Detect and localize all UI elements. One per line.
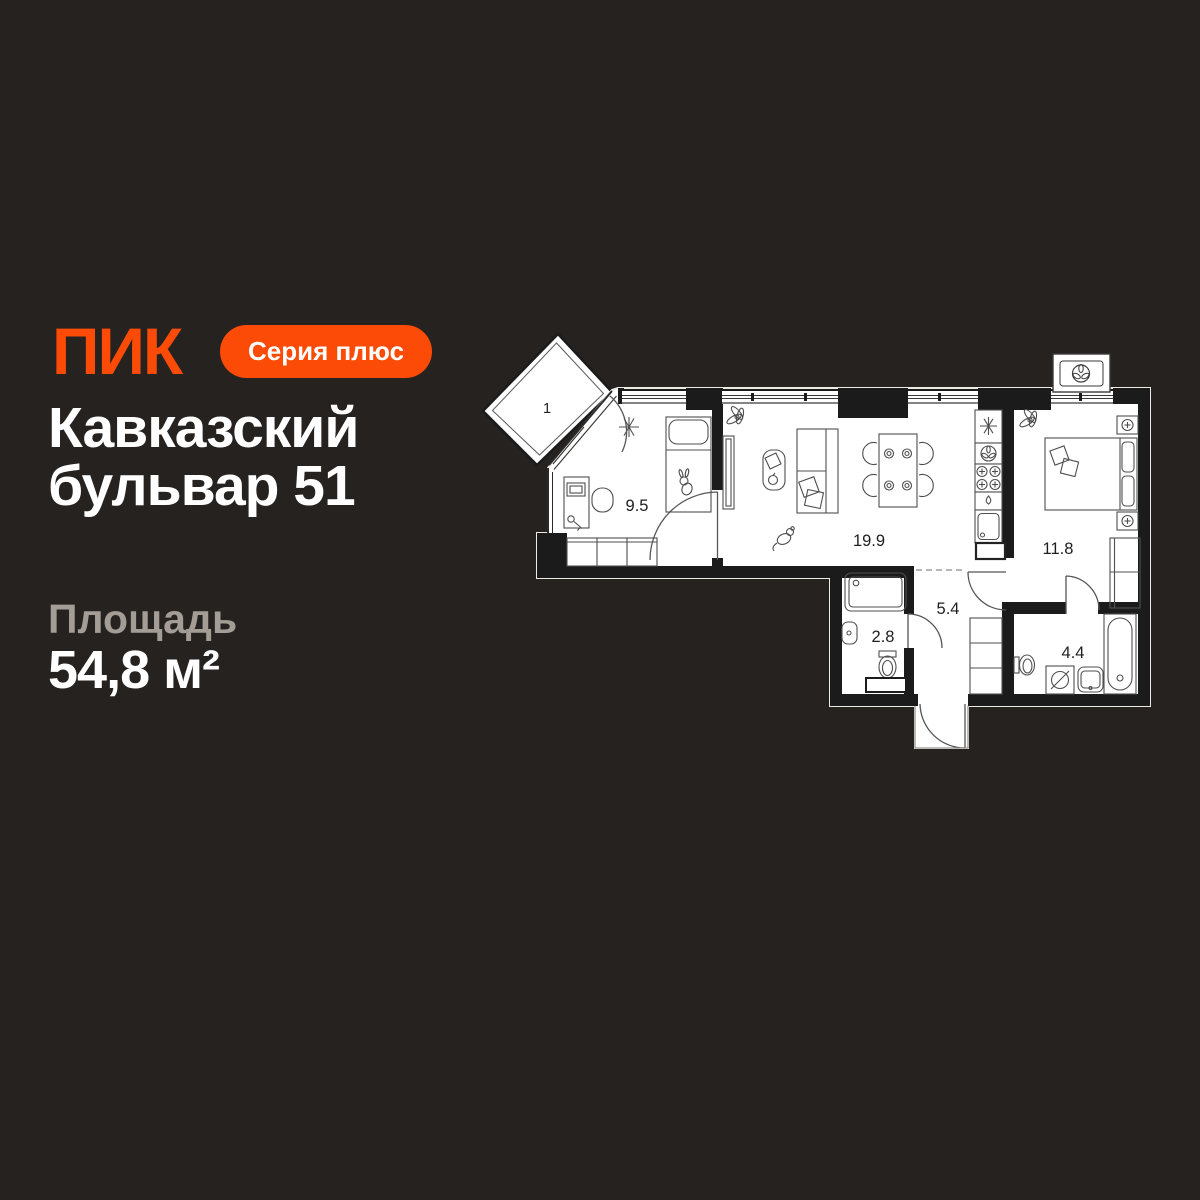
window-living-1: [722, 389, 838, 404]
room-label: 2.8: [872, 628, 895, 646]
room-label: 9.5: [626, 497, 649, 515]
fridge-unit: [975, 410, 1002, 443]
room-label: 11.8: [1043, 540, 1074, 558]
cooktop-unit: [975, 464, 1002, 492]
pik-logo: ПИК: [52, 318, 181, 384]
sink-unit: [975, 510, 1002, 543]
balcony-label: 1: [543, 401, 551, 417]
listing-card: ПИК Серия плюс Кавказскийбульвар 51 Площ…: [0, 0, 1200, 1200]
page-title: Кавказскийбульвар 51: [48, 399, 358, 515]
room-label: 4.4: [1062, 644, 1085, 662]
room-label: 5.4: [937, 600, 960, 618]
title-line1: Кавказский: [48, 396, 358, 460]
oven-unit: [976, 543, 1005, 559]
area-label: Площадь: [48, 597, 237, 642]
title-line2: бульвар 51: [48, 454, 355, 518]
worktop-unit: [975, 492, 1002, 510]
series-badge: Серия плюс: [220, 325, 432, 378]
room-label: 19.9: [853, 532, 885, 550]
window-child-bedroom: [622, 389, 686, 404]
floor-plan: 1: [470, 325, 1170, 755]
hood-unit: [975, 443, 1002, 464]
window-living-2: [908, 389, 978, 404]
kitchen-column: [975, 410, 1005, 559]
area-value: 54,8 м²: [48, 641, 219, 700]
ac-basket: [1053, 354, 1110, 392]
installation-shelf: [866, 678, 906, 692]
